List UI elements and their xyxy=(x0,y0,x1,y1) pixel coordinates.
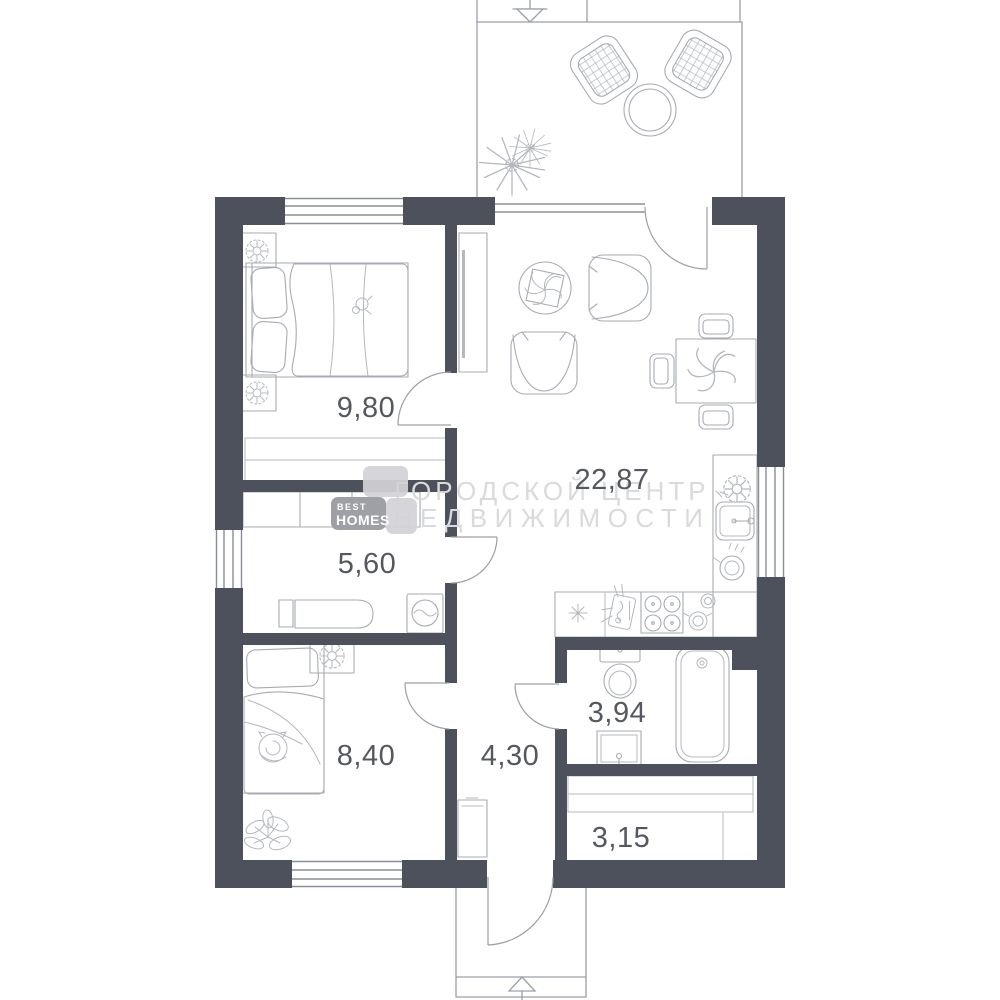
area-label-hallway: 4,30 xyxy=(481,740,539,772)
door-laundry xyxy=(451,537,497,583)
doors xyxy=(398,207,707,945)
door-bedroom-second xyxy=(405,683,449,729)
teapot xyxy=(683,612,712,630)
window-bedroom-main xyxy=(285,199,403,224)
kettle xyxy=(714,543,744,580)
floor-plan: ГОРОДСКОЙ ЦЕНТР НЕДВИЖИМОСТИ BEST HOMES … xyxy=(0,0,1000,1000)
bathtub xyxy=(676,646,729,762)
living-room-furniture xyxy=(459,233,756,429)
hallway-boiler-cabinet xyxy=(458,798,487,857)
entrance-porch xyxy=(456,888,586,1000)
window-kitchen xyxy=(759,467,784,577)
teddy-bear-icon xyxy=(353,296,373,314)
light-symbol-icon xyxy=(569,604,587,622)
watermark-line2: НЕДВИЖИМОСТИ xyxy=(394,503,711,533)
stove xyxy=(641,592,683,633)
single-bed xyxy=(242,643,324,794)
window-living-terrace xyxy=(495,204,645,212)
logo-tile xyxy=(363,466,408,497)
bedroom-main-furniture xyxy=(238,233,453,482)
dining-flowers xyxy=(688,349,735,391)
watermark: ГОРОДСКОЙ ЦЕНТР НЕДВИЖИМОСТИ xyxy=(394,476,711,533)
armchair xyxy=(589,255,651,321)
walls xyxy=(215,197,785,888)
area-label-bedroom-main: 9,80 xyxy=(337,392,395,424)
watermark-line1: ГОРОДСКОЙ ЦЕНТР xyxy=(394,476,709,506)
dining-chair xyxy=(650,354,674,388)
fox-icon xyxy=(259,732,287,762)
area-label-living-kitchen: 22,87 xyxy=(574,464,649,496)
area-label-laundry: 5,60 xyxy=(338,548,396,580)
washing-machine xyxy=(407,594,443,633)
kitchen-counter-right xyxy=(713,455,757,637)
monstera-plant xyxy=(243,809,292,852)
room-area-labels: 9,80 22,87 5,60 8,40 4,30 3,94 3,15 xyxy=(337,392,650,854)
windows xyxy=(217,199,784,887)
window-laundry xyxy=(217,530,242,588)
door-entrance xyxy=(488,877,553,945)
kitchen-sink xyxy=(716,502,754,540)
area-label-bedroom-second: 8,40 xyxy=(337,740,395,772)
logo-text-top: BEST xyxy=(337,502,367,512)
door-terrace xyxy=(645,207,707,269)
dining-chair xyxy=(699,405,733,429)
nightstand xyxy=(238,375,276,411)
terrace-edge-lines xyxy=(477,0,740,22)
door-bedroom-main xyxy=(398,372,451,425)
area-label-wardrobe: 3,15 xyxy=(592,822,650,854)
terrace-chair xyxy=(660,25,736,102)
window-bedroom-second xyxy=(292,862,402,887)
dining-chair xyxy=(699,314,733,338)
double-bed xyxy=(246,263,408,377)
lamp-icon xyxy=(246,382,268,404)
fruit-bowl xyxy=(724,476,750,502)
door-bathroom xyxy=(515,684,559,729)
terrace xyxy=(477,0,742,197)
logo-tile xyxy=(386,498,417,534)
entrance-arrow-top-icon xyxy=(513,0,547,22)
logo-text-bottom: HOMES xyxy=(336,512,390,528)
ironing-board xyxy=(279,600,373,628)
bathroom-sink xyxy=(597,731,641,766)
armchair xyxy=(511,332,577,394)
toilet xyxy=(600,647,640,698)
table-plant xyxy=(525,272,561,304)
terrace-chair xyxy=(566,31,643,109)
best-homes-logo: BEST HOMES xyxy=(331,466,417,534)
area-label-bathroom: 3,94 xyxy=(588,697,646,729)
terrace-table xyxy=(624,84,676,136)
tv-console xyxy=(459,233,487,372)
floor-plan-page: ГОРОДСКОЙ ЦЕНТР НЕДВИЖИМОСТИ BEST HOMES … xyxy=(0,0,1000,1000)
lamp-icon xyxy=(246,240,268,262)
